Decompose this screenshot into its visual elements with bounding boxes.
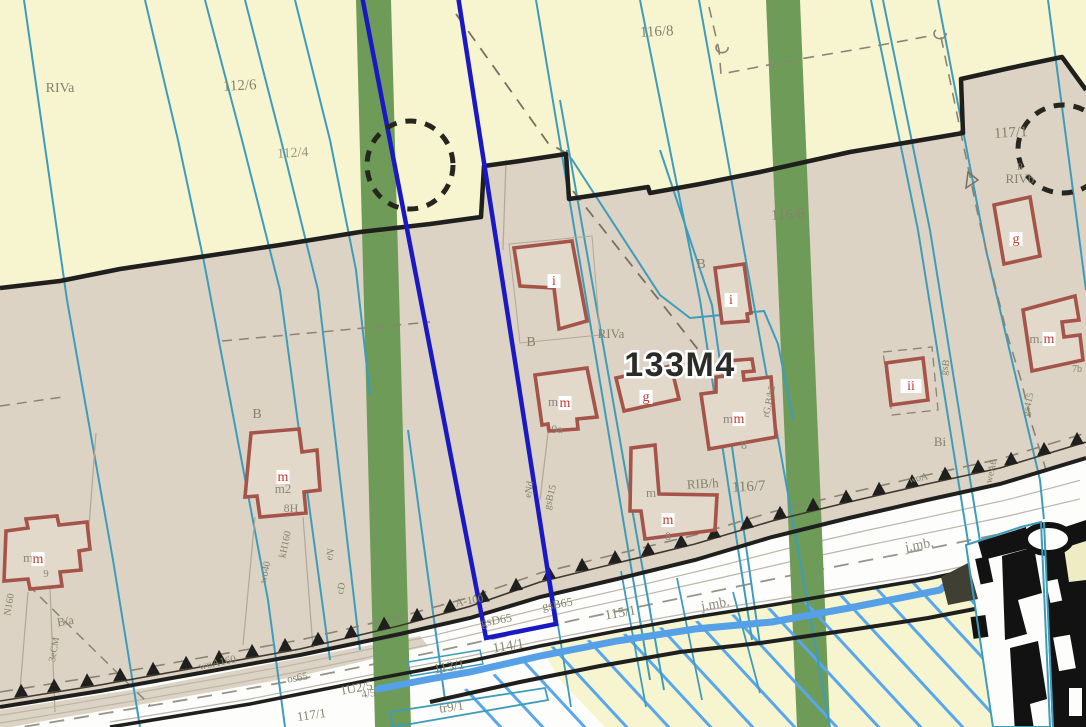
svg-text:B/a: B/a: [56, 613, 76, 630]
svg-text:B: B: [696, 257, 705, 272]
svg-text:m: m: [646, 485, 656, 500]
svg-text:116/8: 116/8: [640, 23, 674, 41]
svg-text:RIB/h: RIB/h: [686, 475, 719, 492]
svg-text:7b: 7b: [1072, 364, 1082, 375]
svg-text:m: m: [548, 394, 558, 409]
svg-text:8H: 8H: [284, 501, 299, 515]
svg-text:m: m: [723, 411, 733, 426]
svg-text:m: m: [560, 396, 571, 411]
svg-text:B: B: [526, 335, 535, 350]
svg-text:i: i: [729, 293, 733, 308]
svg-text:116/6: 116/6: [771, 206, 806, 224]
svg-text:133M4: 133M4: [624, 346, 735, 384]
svg-text:m: m: [734, 412, 745, 427]
svg-text:9: 9: [43, 568, 49, 580]
svg-text:4/5: 4/5: [361, 687, 377, 701]
svg-text:9a: 9a: [551, 422, 563, 436]
svg-text:m: m: [33, 552, 44, 567]
svg-text:g: g: [643, 390, 650, 405]
svg-text:8: 8: [741, 438, 747, 452]
svg-text:B: B: [252, 407, 261, 422]
svg-text:Bi: Bi: [934, 434, 947, 449]
svg-text:m: m: [663, 513, 674, 528]
svg-text:RIVa: RIVa: [598, 326, 625, 341]
svg-text:ii: ii: [907, 379, 915, 394]
svg-text:RIVb: RIVb: [1006, 171, 1035, 186]
svg-text:i: i: [552, 274, 556, 289]
svg-text:112/4: 112/4: [277, 145, 309, 162]
svg-text:116/7: 116/7: [732, 478, 767, 496]
svg-text:g: g: [1013, 232, 1020, 247]
svg-text:8: 8: [665, 529, 671, 543]
svg-text:B: B: [1017, 162, 1023, 172]
svg-text:RIVa: RIVa: [46, 81, 76, 96]
svg-text:m: m: [1044, 332, 1055, 347]
svg-text:112/6: 112/6: [223, 77, 258, 95]
svg-text:m.: m.: [1029, 331, 1042, 346]
svg-text:m: m: [278, 470, 289, 485]
svg-text:117/1: 117/1: [994, 124, 1028, 142]
